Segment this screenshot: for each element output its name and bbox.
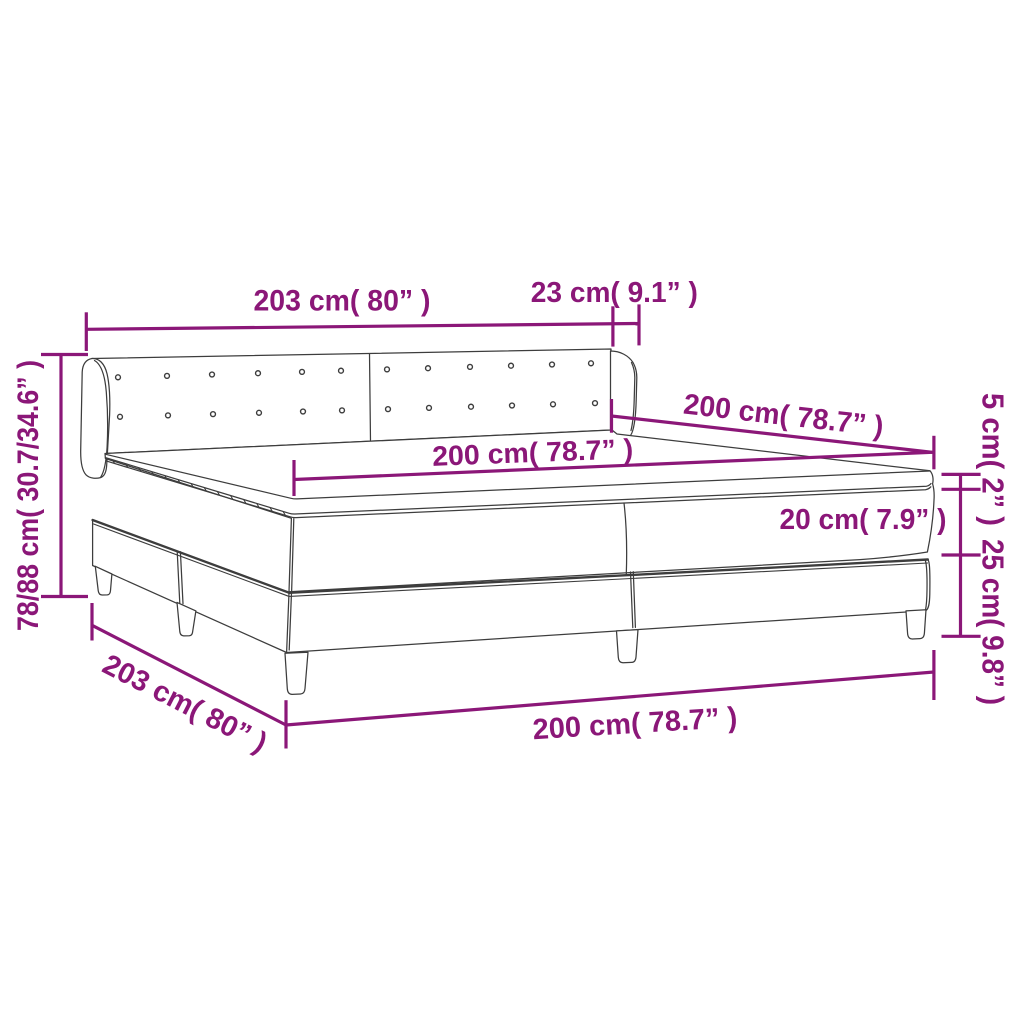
svg-text:78/88 cm( 30.7/34.6” ): 78/88 cm( 30.7/34.6” ) xyxy=(12,360,45,631)
svg-text:25 cm( 9.8” ): 25 cm( 9.8” ) xyxy=(976,539,1010,705)
svg-text:5 cm( 2” ): 5 cm( 2” ) xyxy=(976,393,1010,526)
svg-text:23 cm( 9.1” ): 23 cm( 9.1” ) xyxy=(531,277,698,309)
svg-text:20 cm( 7.9” ): 20 cm( 7.9” ) xyxy=(780,504,947,536)
svg-text:203 cm( 80” ): 203 cm( 80” ) xyxy=(254,285,431,318)
